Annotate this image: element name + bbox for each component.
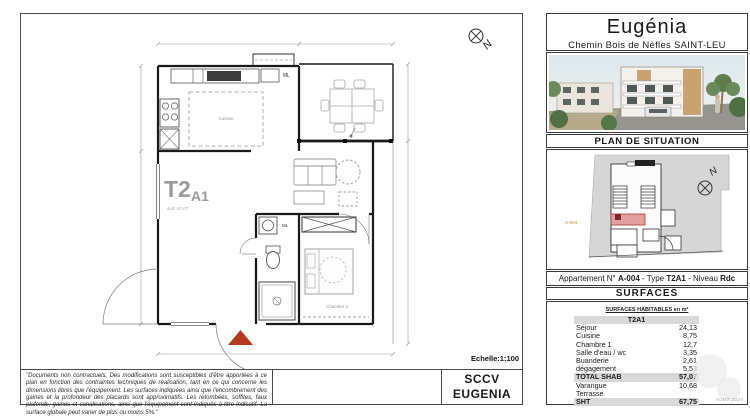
kitchen-area: Cuisine ML xyxy=(160,69,290,149)
row-value: 10,68 xyxy=(679,382,697,390)
washer-label: ML xyxy=(283,73,290,79)
surfaces-header: SURFACES xyxy=(546,287,748,300)
surfaces-table-box: SURFACES HABITABLES en m² T2A1 Séjour24,… xyxy=(546,301,748,405)
apartment-info-part: T2A1 xyxy=(666,274,686,283)
plan-sheet: Cuisine ML xyxy=(0,0,750,420)
apartment-info-part: Appartement N° xyxy=(559,274,618,283)
row-value: 67,75 xyxy=(679,398,697,406)
person xyxy=(715,99,720,113)
situation-plan-box: A-004 N xyxy=(546,149,748,270)
building-photo-box xyxy=(546,52,748,133)
situation-header: PLAN DE SITUATION xyxy=(546,134,748,148)
kitchen-label: Cuisine xyxy=(218,116,234,121)
building-photo xyxy=(549,55,745,130)
washing-machine xyxy=(259,217,277,234)
project-title-box: Eugénia Chemin Bois de Nèfles SAINT-LEU xyxy=(546,13,748,51)
empty-cell xyxy=(273,370,442,404)
unit-type-label: T2 A1 surf. 57,07 xyxy=(164,176,209,211)
apartment-info-part: A-004 xyxy=(618,274,640,283)
varangue-area xyxy=(321,80,383,138)
disclaimer-text: "Documents non contractuels. Des modific… xyxy=(21,370,273,404)
north-icon: N xyxy=(469,29,495,52)
svg-text:T2: T2 xyxy=(164,176,191,202)
project-title: Eugénia xyxy=(547,16,747,39)
apartment-info-part: - Type xyxy=(640,274,667,283)
svg-text:A1: A1 xyxy=(191,188,209,204)
north-letter: N xyxy=(481,38,495,52)
bathroom-area: ML xyxy=(240,217,295,320)
project-address: Chemin Bois de Nèfles SAINT-LEU xyxy=(547,40,747,51)
company-name: SCCV EUGENIA xyxy=(442,370,522,404)
apartment-info-part: - Niveau xyxy=(686,274,720,283)
armchair xyxy=(336,160,360,184)
title-block-strip: "Documents non contractuels. Des modific… xyxy=(21,369,522,404)
floor-plan-svg: Cuisine ML xyxy=(21,14,524,369)
top-closet xyxy=(253,54,294,66)
bedroom-area: Chambre 1 xyxy=(302,214,369,309)
row-label: SHT xyxy=(576,398,590,406)
surfaces-table-rows: Séjour24,13Cuisine8,75Chambre 112,7Salle… xyxy=(574,324,699,406)
balustrade xyxy=(297,139,393,143)
sofa xyxy=(294,159,336,185)
bedroom-label: Chambre 1 xyxy=(326,304,349,309)
living-area xyxy=(294,159,360,206)
surfaces-mini-header: SURFACES HABITABLES en m² xyxy=(547,307,747,313)
stamp-date: AOUT 2024 xyxy=(716,397,743,402)
table-row: SHT67,75 xyxy=(574,398,699,406)
apartment-info-part: Rdc xyxy=(720,274,735,283)
unit-area-caption: surf. 57,07 xyxy=(167,206,189,211)
apartment-info-line: Appartement N° A-004 - Type T2A1 - Nivea… xyxy=(546,271,748,286)
company-line-1: SCCV xyxy=(464,372,499,387)
scale-label: Echelle:1:100 xyxy=(471,354,519,363)
surfaces-table: T2A1 Séjour24,13Cuisine8,75Chambre 112,7… xyxy=(574,316,699,406)
situation-unit-tag: A-004 xyxy=(565,220,578,225)
toilet xyxy=(267,252,280,269)
coffee-table xyxy=(294,191,324,204)
entrance-marker xyxy=(228,330,253,345)
company-line-2: EUGENIA xyxy=(453,387,511,402)
main-drawing-frame: Cuisine ML xyxy=(20,13,523,405)
situation-plan: A-004 N xyxy=(547,150,747,269)
sink xyxy=(207,71,241,81)
laundry-label: ML xyxy=(282,223,289,228)
